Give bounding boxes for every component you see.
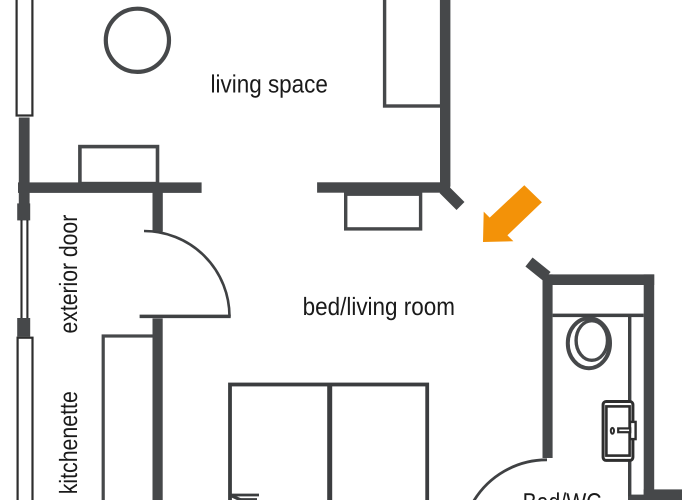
svg-text:living space: living space: [211, 70, 328, 98]
svg-text:bed/living room: bed/living room: [303, 293, 455, 321]
svg-text:kitchenette: kitchenette: [55, 391, 83, 494]
svg-text:exterior door: exterior door: [55, 215, 83, 334]
svg-text:Bad/WC: Bad/WC: [523, 489, 602, 500]
